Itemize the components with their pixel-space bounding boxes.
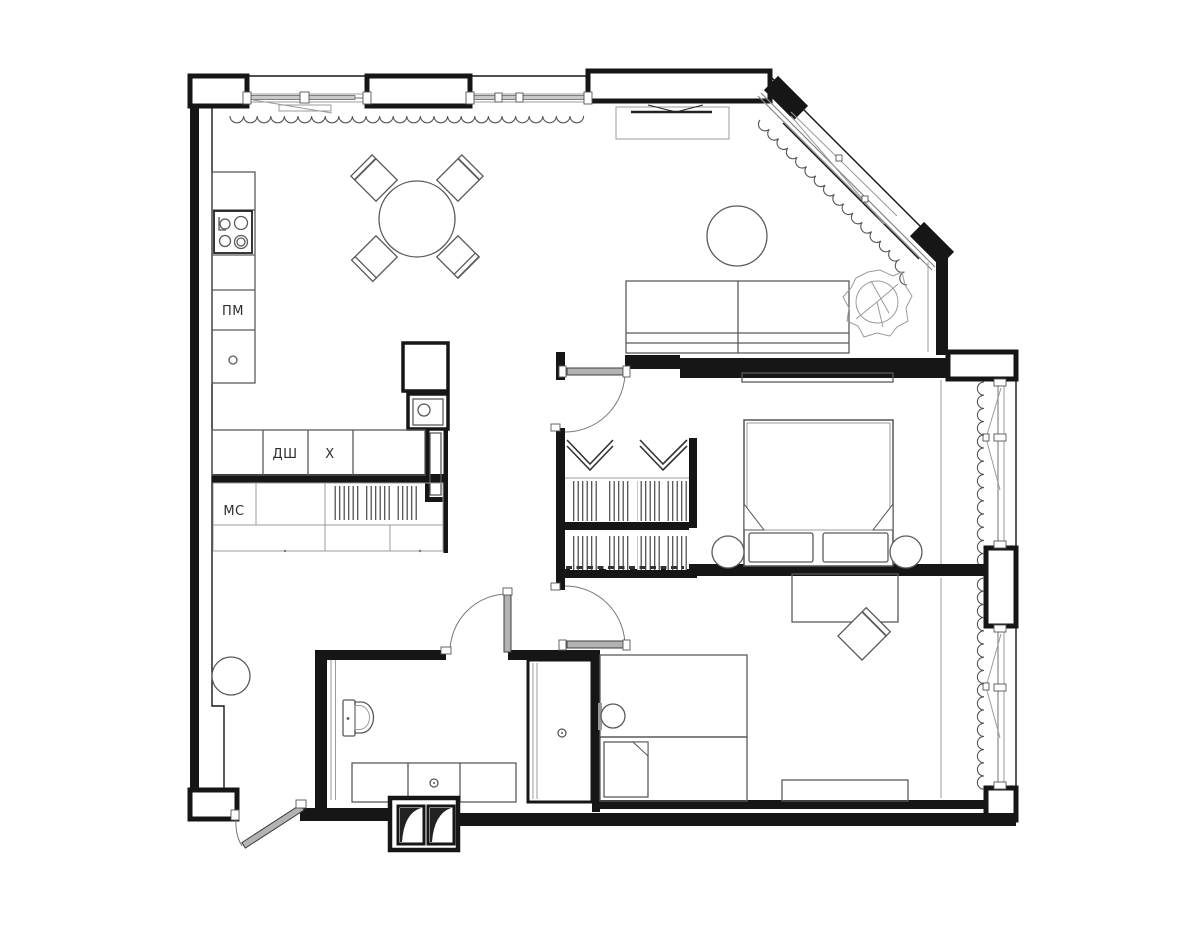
door-swing-arc: [450, 594, 508, 652]
window-north-2: [466, 92, 592, 104]
walk-in-wardrobe: [565, 440, 689, 570]
window-east-2: [983, 625, 1006, 789]
window-sash: [473, 96, 585, 100]
floor-plan: ПМ ДШ Х МС: [0, 0, 1200, 930]
dining-chair: [437, 236, 479, 278]
door-leaf: [242, 805, 304, 849]
plant-icon: [843, 270, 912, 337]
wardrobe-rack-hatch: [666, 536, 687, 570]
south-wall-right: [458, 813, 1016, 826]
wardrobe-west-wall: [556, 428, 565, 590]
wardrobe-east-wall: [689, 438, 697, 528]
kitchen-counter: [212, 172, 255, 383]
dishwasher-label: ПМ: [222, 304, 244, 319]
window-north-1: [243, 92, 371, 113]
diagonal-wall-inner-line: [783, 123, 919, 259]
south-wall-left: [300, 808, 392, 821]
double-bed: [744, 420, 893, 566]
wardrobe-hatch: [333, 486, 361, 520]
north-pier-1: [190, 76, 247, 106]
wardrobe-rack-hatch: [666, 481, 687, 521]
east-pier-mid: [986, 548, 1016, 626]
door-leaf: [567, 368, 623, 375]
bathroom-north-wall: [315, 650, 446, 660]
dining-chair: [437, 155, 483, 201]
single-bed-2: [600, 737, 747, 801]
bedroom2-door: [559, 586, 630, 650]
storage-unit: МС: [213, 483, 443, 552]
desk: [792, 574, 898, 622]
door-swing-arc: [565, 586, 625, 646]
desk-chair: [838, 608, 890, 660]
southwest-pier: [190, 790, 237, 819]
wardrobe-rack-hatch: [606, 481, 630, 521]
wardrobe-rack-hatch: [570, 536, 599, 570]
bathroom: [343, 660, 592, 802]
north-pier-3: [588, 71, 770, 101]
tv-icon: [631, 105, 712, 112]
pouf: [712, 536, 744, 568]
window-east-1: [983, 379, 1006, 548]
wardrobe-rack-hatch: [606, 536, 630, 570]
curtain-diagonal: [758, 120, 907, 285]
door-swing-arc: [565, 372, 625, 432]
entry-door: [231, 800, 306, 848]
vent-shafts: [390, 798, 458, 850]
wardrobe-hatch: [395, 486, 418, 520]
dining-set: [351, 155, 483, 281]
shower-cabin: [528, 660, 592, 802]
east-pier-top: [948, 352, 1016, 379]
coffee-table: [707, 206, 767, 266]
oven-label: ДШ: [272, 447, 297, 462]
curtain-east-1: [977, 382, 984, 567]
curtain-east-2: [977, 578, 984, 789]
tall-cabinet: [403, 343, 448, 391]
cooktop-icon: [214, 211, 252, 253]
floor-plan-page: ПМ ДШ Х МС: [0, 0, 1200, 930]
fridge-label: Х: [325, 447, 334, 462]
master-bedroom: [712, 373, 922, 568]
wardrobe-hatch: [365, 486, 392, 520]
door-leaf: [567, 641, 623, 648]
washer-label: МС: [223, 504, 244, 519]
blanket-fold: [633, 742, 648, 756]
second-bedroom: [566, 568, 908, 802]
dining-chair: [352, 236, 398, 282]
bathroom-door: [441, 588, 512, 654]
door-swing-arc: [236, 818, 242, 846]
hanger-symbols: [567, 440, 687, 470]
dresser: [782, 780, 908, 801]
master-bedroom-north-wall: [680, 358, 948, 378]
single-bed-1: [598, 655, 747, 737]
appliance-row: ДШ Х: [212, 430, 425, 475]
door-leaf: [504, 594, 511, 652]
diagonal-wall-wedge-1: [771, 83, 801, 113]
dining-table: [379, 181, 455, 257]
pocket-door-panel: [430, 433, 441, 495]
corridor-door: [559, 366, 630, 432]
pouf: [890, 536, 922, 568]
entry-pouf: [212, 657, 250, 695]
sofa: [626, 281, 849, 353]
wardrobe-rack-hatch: [637, 481, 661, 521]
curtain-north: [230, 116, 584, 123]
wardrobe-rack-hatch: [637, 536, 661, 570]
wardrobe-rack-hatch: [570, 481, 599, 521]
east-upper-wall: [936, 248, 948, 355]
window-tilt-line: [791, 112, 897, 216]
west-wall: [190, 76, 199, 818]
north-pier-2: [367, 76, 470, 106]
dining-chair: [351, 155, 397, 201]
sink-icon: [229, 356, 237, 364]
living-room: [616, 105, 912, 353]
toilet-icon: [343, 700, 374, 736]
window-diagonal: [758, 93, 935, 270]
bathroom-west-wall: [315, 650, 327, 820]
round-pillow: [601, 704, 625, 728]
